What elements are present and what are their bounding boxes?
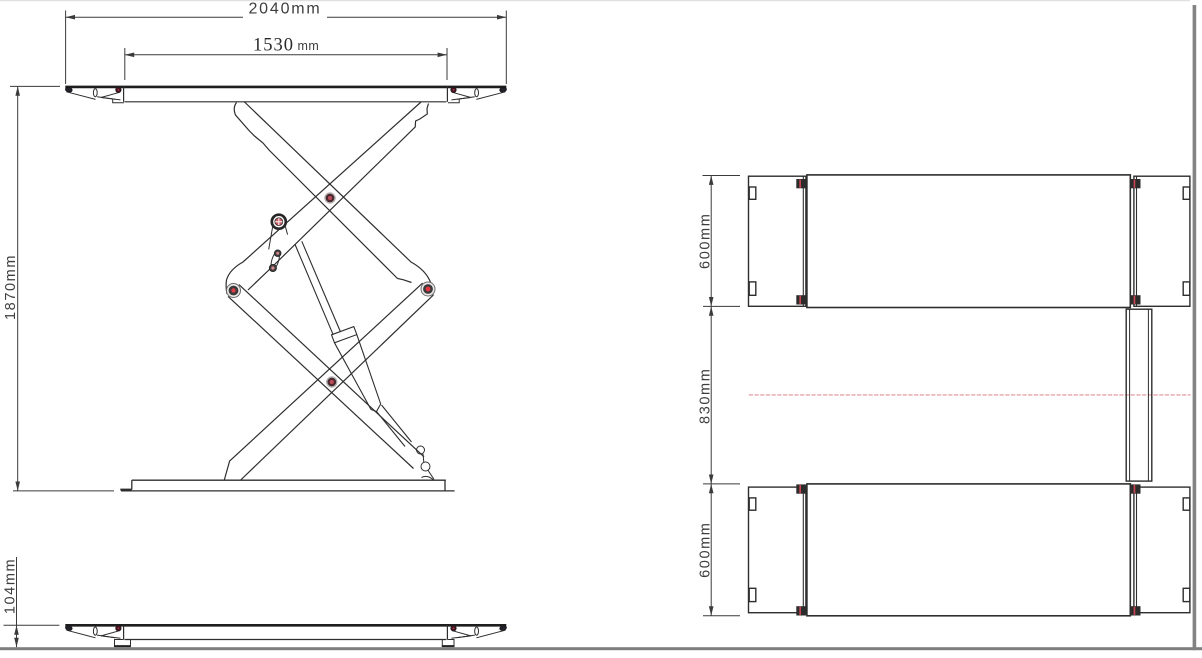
svg-text:mm: mm <box>298 39 320 53</box>
svg-text:1870mm: 1870mm <box>3 254 19 320</box>
svg-text:1530: 1530 <box>253 36 294 56</box>
svg-text:2040mm: 2040mm <box>248 1 321 18</box>
svg-text:104mm: 104mm <box>2 558 18 614</box>
